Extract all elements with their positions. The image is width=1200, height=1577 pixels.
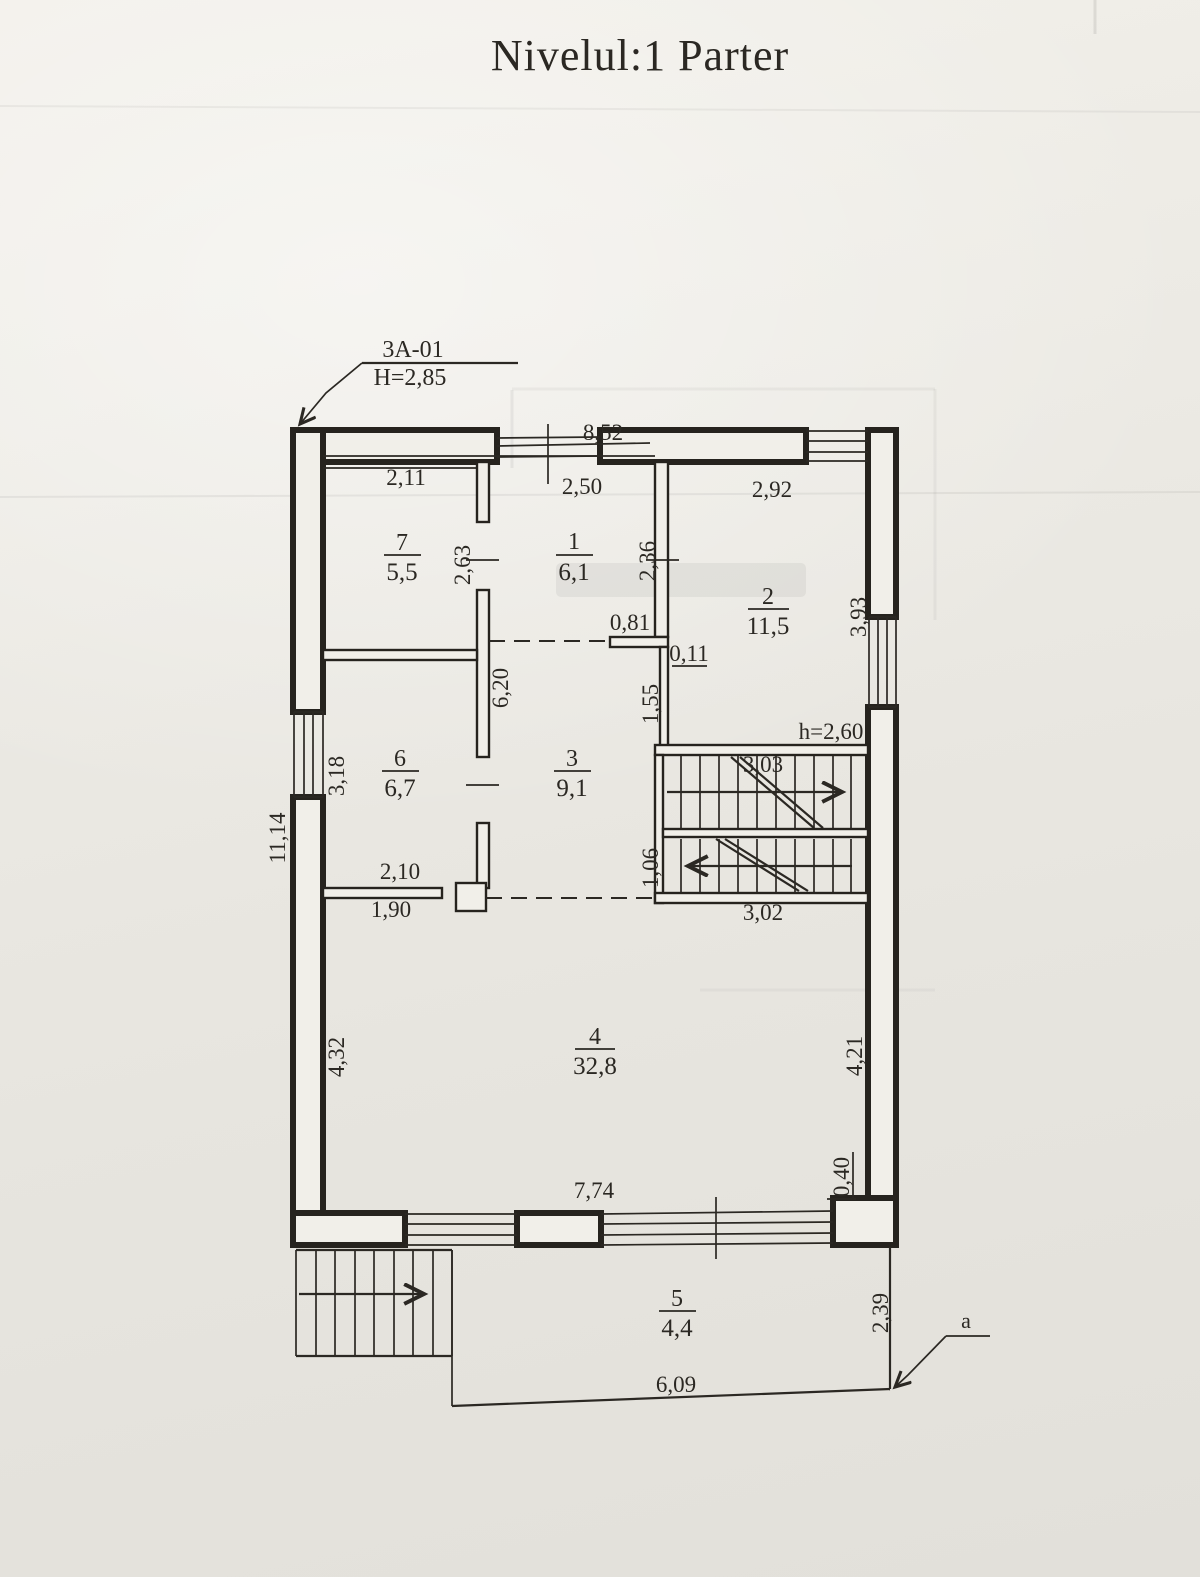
room-label-3: 3 9,1	[554, 746, 591, 802]
room-area: 9,1	[556, 775, 587, 802]
bottom-glazed-opening	[601, 1211, 833, 1245]
room-area: 6,7	[384, 775, 415, 802]
dim-room7-width: 2,11	[386, 465, 425, 490]
dim-terrace-depth: 2,39	[868, 1293, 893, 1333]
room-label-7: 7 5,5	[384, 530, 421, 586]
dim-window-right: 3,93	[846, 597, 871, 637]
room-number: 2	[762, 584, 774, 610]
dim-room6-width-top: 2,10	[380, 859, 420, 884]
level-leader: 3A-01 H=2,85	[300, 337, 518, 424]
dim-room6-depth: 3,18	[324, 756, 349, 796]
room-area: 32,8	[573, 1053, 617, 1080]
corner-ref-label: a	[961, 1308, 971, 1333]
dim-room4-left-depth: 4,32	[324, 1037, 349, 1077]
dim-room2-width: 2,92	[752, 477, 792, 502]
room-label-4: 4 32,8	[573, 1024, 617, 1080]
room-label-1: 1 6,1	[556, 529, 593, 586]
corner-ref-arrow	[895, 1336, 946, 1387]
leader-height: H=2,85	[374, 365, 447, 391]
dim-overall-top: 8,52	[583, 420, 623, 445]
column	[456, 883, 486, 911]
dim-left-overall: 11,14	[265, 812, 290, 863]
room-area: 6,1	[558, 559, 589, 586]
room-area: 11,5	[747, 613, 790, 640]
stair-height-note: h=2,60	[799, 719, 864, 744]
room-number: 6	[394, 746, 406, 772]
dim-terrace-width: 6,09	[656, 1372, 696, 1397]
room-area: 4,4	[661, 1315, 693, 1342]
bottom-left-window	[405, 1214, 517, 1245]
dim-wall-thickness: 0,11	[669, 641, 708, 666]
dim-room7-depth: 2,63	[450, 545, 475, 585]
leader-code: 3A-01	[382, 337, 443, 363]
dim-corner-offset: 0,40	[829, 1157, 854, 1197]
room-number: 3	[566, 746, 578, 772]
stair-lower-flight	[681, 839, 852, 892]
dim-niche-width: 0,81	[610, 610, 650, 635]
room-number: 4	[589, 1024, 601, 1050]
leader-arrow	[300, 363, 362, 424]
room-number: 5	[671, 1286, 683, 1312]
dim-hall-length: 6,20	[488, 668, 513, 708]
room-label-6: 6 6,7	[382, 746, 419, 802]
right-wall-window	[869, 617, 896, 707]
left-wall-window	[294, 712, 323, 797]
page-title: Nivelul:1 Parter	[491, 31, 789, 80]
dim-room1-width: 2,50	[562, 474, 602, 499]
dim-wall-below-niche: 1,55	[638, 684, 663, 724]
dim-stair-down-length: 3,02	[743, 900, 783, 925]
dim-room4-right-depth: 4,21	[842, 1036, 867, 1076]
staircase-external	[296, 1250, 452, 1356]
dim-room1-depth: 2,36	[635, 541, 660, 581]
top-right-window	[806, 431, 868, 461]
room-number: 7	[396, 530, 408, 556]
dim-room6-width-bottom: 1,90	[371, 897, 411, 922]
dim-stair-lower-width: 1,06	[638, 848, 663, 888]
dim-stair-up-length: 3,03	[743, 752, 783, 777]
niche-wall	[610, 637, 668, 647]
stair-landing-edge	[663, 829, 868, 837]
dim-room4-width: 7,74	[574, 1178, 615, 1203]
room-label-5: 5 4,4	[659, 1286, 696, 1342]
scanned-floor-plan-page: Nivelul:1 Parter 3A-01 H=2,85	[0, 0, 1200, 1577]
room-number: 1	[568, 529, 580, 555]
room-area: 5,5	[386, 559, 417, 586]
corner-ref-leader: a	[895, 1308, 990, 1387]
